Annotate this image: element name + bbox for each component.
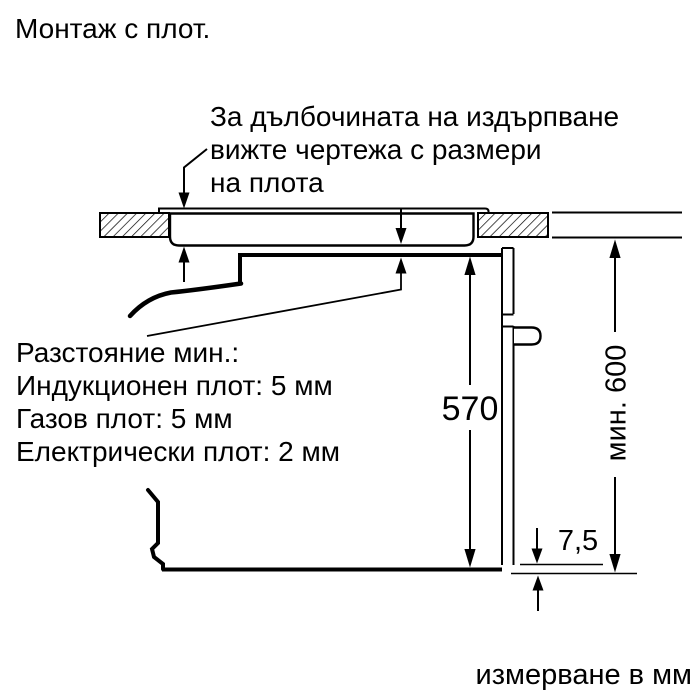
dimension-600-label: мин. 600 (601, 345, 634, 462)
clearance-note-heading: Разстояние мин.: (16, 336, 340, 369)
annotation-leader-arrow (179, 149, 208, 209)
hob-body-outline (170, 214, 474, 246)
pullout-depth-note-line2: вижте чертежа с размери (210, 133, 619, 166)
clearance-gas: Газов плот: 5 мм (16, 402, 340, 435)
countertop-right-outline (552, 213, 682, 238)
mounting-peg (514, 328, 541, 345)
units-note: измерване в мм (476, 659, 692, 692)
installation-diagram-page: Монтаж с плот. За дълбочината на издърпв… (0, 0, 700, 700)
countertop-left-hatch (100, 213, 169, 237)
hob-bottom-up-arrow (179, 247, 190, 283)
clearance-electric: Електрически плот: 2 мм (16, 435, 340, 468)
clearance-note: Разстояние мин.: Индукционен плот: 5 мм … (16, 336, 340, 468)
cabinet-side-wall (502, 248, 514, 565)
oven-top-line (240, 253, 502, 284)
clearance-up-arrow-leader (147, 258, 407, 337)
countertop-right-hatch (478, 213, 548, 237)
dimension-75-label: 7,5 (558, 525, 598, 558)
clearance-induction: Индукционен плот: 5 мм (16, 369, 340, 402)
page-title: Монтаж с плот. (15, 13, 210, 45)
pullout-depth-note-line3: на плота (210, 166, 619, 199)
dimension-570-label: 570 (442, 390, 499, 429)
oven-bottom-break-line (148, 490, 163, 569)
pullout-depth-note-line1: За дълбочината на издърпване (210, 100, 619, 133)
pullout-depth-note: За дълбочината на издърпване вижте черте… (210, 100, 619, 199)
oven-front-break-line (130, 284, 241, 317)
